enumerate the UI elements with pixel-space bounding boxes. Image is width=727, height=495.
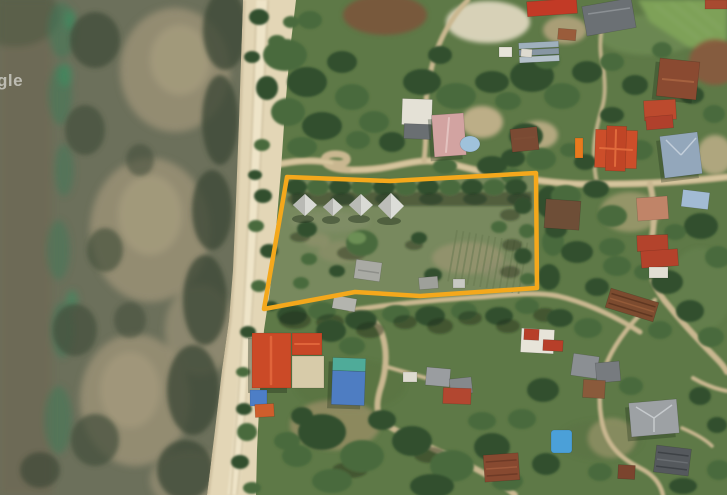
- satellite-map-viewport[interactable]: gle: [0, 0, 727, 495]
- blue-tarp-building: [327, 357, 366, 409]
- pool-blue-tarp: [551, 430, 572, 453]
- water-area: [0, 0, 250, 495]
- google-watermark: gle: [0, 71, 23, 90]
